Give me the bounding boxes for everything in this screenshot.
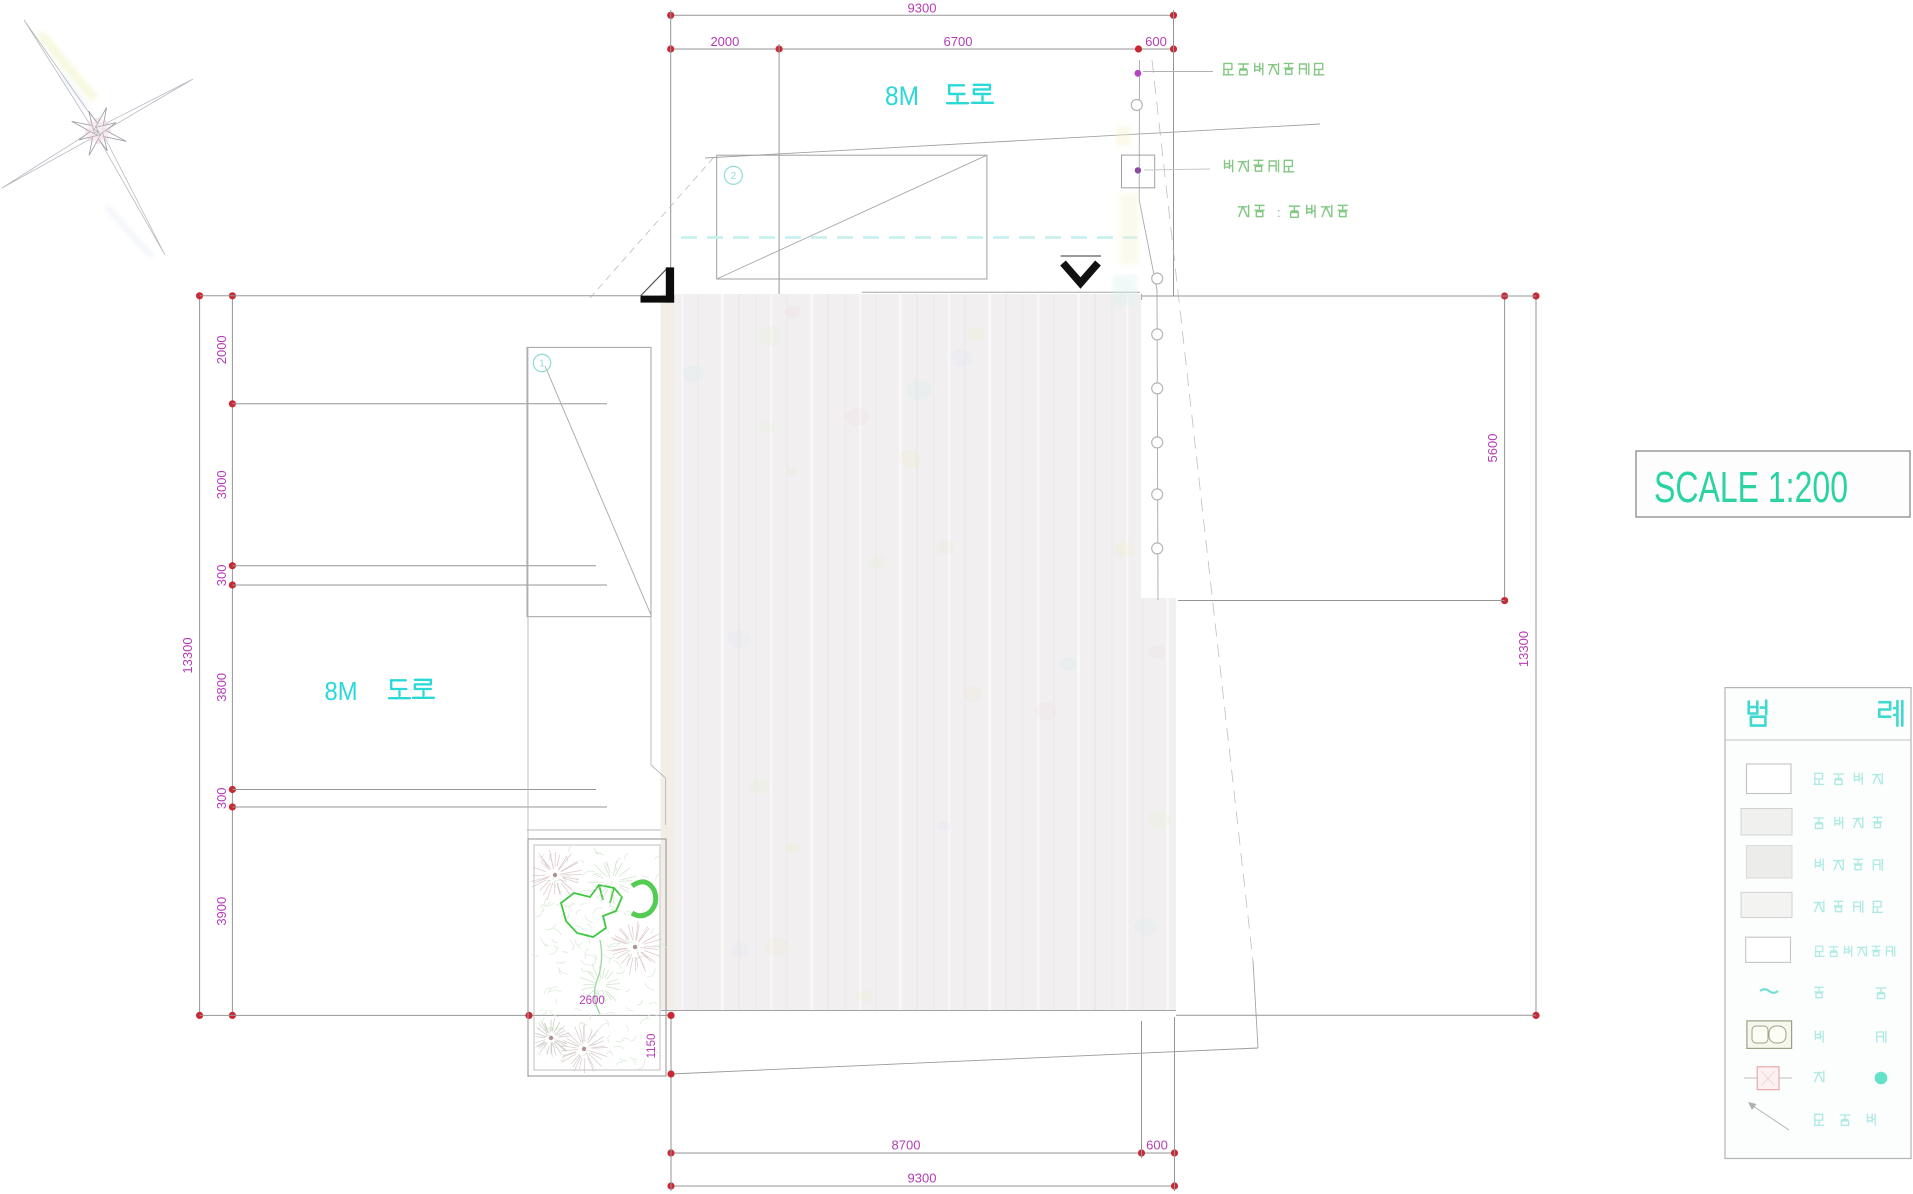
svg-text:8700: 8700 (892, 1138, 921, 1153)
svg-text:600: 600 (1145, 34, 1167, 49)
svg-text:13300: 13300 (1516, 631, 1531, 667)
svg-text:2000: 2000 (710, 34, 739, 49)
svg-text:5600: 5600 (1485, 434, 1500, 463)
svg-text:6700: 6700 (944, 34, 973, 49)
svg-text:3800: 3800 (214, 673, 229, 702)
svg-text:2600: 2600 (579, 995, 605, 1007)
svg-text:3000: 3000 (214, 470, 229, 499)
svg-text:8M: 8M (325, 676, 358, 706)
svg-text:600: 600 (1146, 1138, 1168, 1153)
svg-text:2000: 2000 (214, 335, 229, 364)
svg-text::: : (1277, 205, 1281, 220)
svg-text:13300: 13300 (180, 637, 195, 673)
svg-text:2: 2 (731, 171, 737, 182)
svg-text:SCALE 1:200: SCALE 1:200 (1654, 463, 1848, 512)
svg-text:300: 300 (214, 565, 229, 587)
svg-text:9300: 9300 (908, 1171, 937, 1186)
svg-text:1: 1 (539, 359, 545, 370)
svg-text:3900: 3900 (214, 897, 229, 926)
svg-text:8M: 8M (885, 81, 919, 111)
svg-text:9300: 9300 (908, 1, 937, 16)
svg-text:300: 300 (214, 787, 229, 809)
svg-text:1150: 1150 (646, 1034, 658, 1059)
